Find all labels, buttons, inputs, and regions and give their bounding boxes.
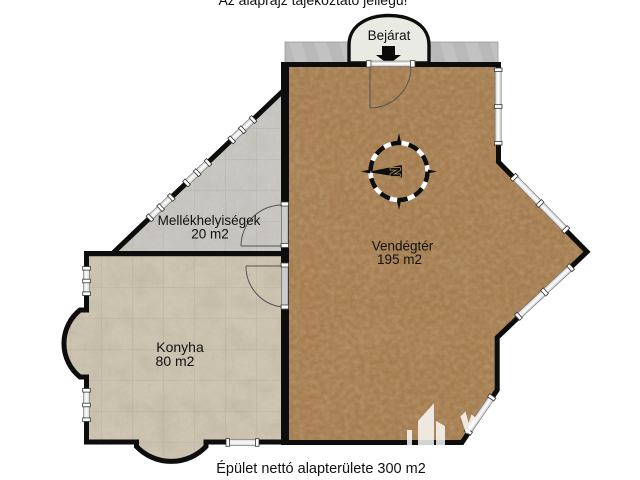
- svg-text:Az alaprajz tájékoztató jelleg: Az alaprajz tájékoztató jellegű!: [218, 0, 407, 8]
- svg-text:Bejárat: Bejárat: [368, 28, 411, 43]
- svg-text:80 m2: 80 m2: [156, 353, 195, 369]
- svg-text:195 m2: 195 m2: [377, 252, 422, 267]
- svg-text:N: N: [388, 167, 404, 177]
- svg-text:20 m2: 20 m2: [191, 227, 229, 242]
- svg-text:Épület nettó alapterülete 300: Épület nettó alapterülete 300 m2: [216, 460, 426, 477]
